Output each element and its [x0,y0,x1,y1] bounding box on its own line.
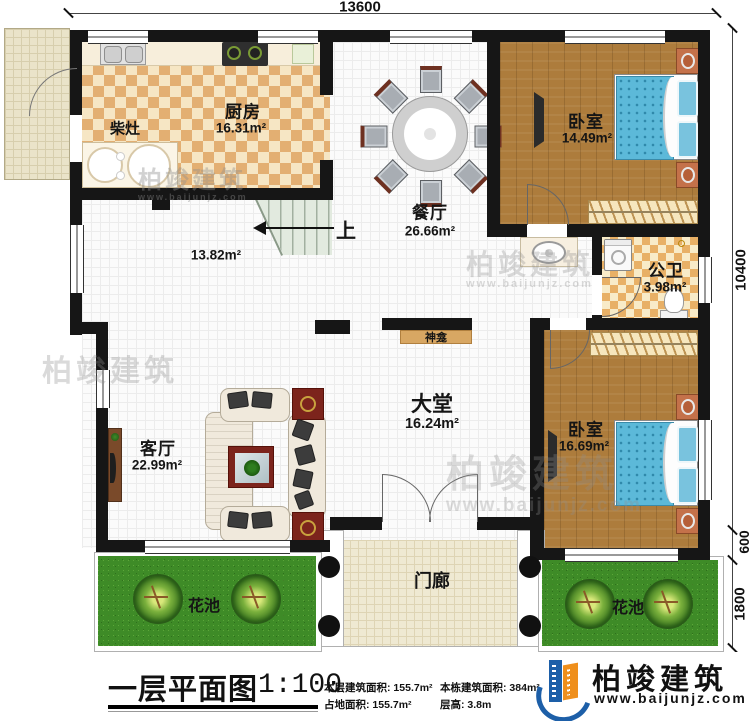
tv-icon [534,92,544,148]
wall [320,160,333,200]
dining-table-center [424,128,436,140]
dining-label: 餐厅 [412,199,448,224]
wall [487,30,500,237]
porch-column [318,615,340,637]
window [565,30,665,44]
watermark: 柏竣建筑 www.baijunjz.com [446,456,642,516]
living-area: 22.99m² [132,458,182,473]
nightstand [676,508,700,534]
hall-label: 大堂 [411,388,453,418]
floor-plan-canvas: 厨房 16.31m² 柴灶 餐厅 26.66m² 13.82m² 上 卧室 14… [0,0,750,721]
brand-logo-tower-icon [549,660,562,702]
dimension-right-wall: 600 [736,530,750,553]
stairs-up-label: 上 [336,215,356,244]
watermark-url: www.baijunjz.com [446,496,642,516]
kitchen-area: 16.31m² [216,121,266,136]
stair-direction-line [266,227,334,229]
nightstand-knob [681,53,695,69]
porch-column [519,615,541,637]
washing-machine-icon [604,239,632,271]
shrine-label: 神龛 [425,329,447,345]
sink-basin [125,46,143,63]
dining-chair [361,126,388,148]
building-windows [567,669,570,696]
sofa-pillow [227,511,249,529]
tower-windows [552,665,556,697]
double-sink-icon [100,43,146,65]
brand-url: www.baijunjz.com [594,690,747,706]
bathroom-area: 3.98m² [644,280,687,295]
stat-footprint-area: 占地面积: 155.7m² [324,697,412,712]
dimension-line-top [68,13,716,14]
pillow [677,121,698,158]
wall [530,318,544,560]
cutting-board [292,44,314,64]
bedroom-bottom-label: 卧室 [568,416,604,441]
title-underline-thin [108,711,318,712]
pillow [677,80,698,117]
bedroom-top-area: 14.49m² [562,131,612,146]
stat-label: 本层建筑面积: [324,682,391,694]
wardrobe [588,200,698,224]
watermark: 柏竣建筑 www.baijunjz.com [466,250,594,291]
nightstand [676,48,700,74]
window [258,30,318,44]
burner [248,46,262,60]
door-opening [527,224,567,237]
stat-building-area: 本栋建筑面积: 384m² [440,680,540,695]
dimension-right-flowerbed: 1800 [732,587,749,620]
gold-medallion [300,396,316,412]
table-plant-icon [244,460,260,476]
stove-small-hole [116,152,125,161]
stat-value: 155.7m² [372,699,411,711]
sofa-pillow [292,468,313,489]
burner [227,46,241,60]
wall [320,30,333,95]
flower-bed-left-label: 花池 [188,592,220,616]
coffee-table [228,446,274,488]
window [145,540,290,554]
tv-cabinet [108,428,122,502]
shrub-icon [231,574,281,624]
stair-hall-area: 13.82m² [191,248,241,263]
wardrobe [590,332,698,356]
window [698,420,712,500]
nightstand-knob [681,399,695,415]
wood-stove-label: 柴灶 [110,118,140,139]
watermark: 柏竣建筑 www.baijunjz.com [138,168,248,203]
stat-label: 本栋建筑面积: [440,682,507,694]
sofa-pillow [227,391,249,410]
window [565,548,678,562]
shrub-icon [643,579,693,629]
pillow [677,426,698,463]
brand-logo-building-icon [563,663,578,701]
window [88,30,148,44]
wall [315,320,350,334]
nightstand-knob [681,167,695,183]
window [390,30,472,44]
flower-bed-right-label: 花池 [612,594,644,618]
stat-storey-height: 层高: 3.8m [440,697,491,712]
stat-value: 155.7m² [393,682,432,694]
stat-value: 3.8m [467,699,491,711]
gold-medallion [300,520,316,536]
wall [477,517,534,530]
side-table [292,388,324,420]
sofa-pillow [251,391,273,409]
watermark-brand: 柏竣建筑 [138,168,248,193]
hall-area: 16.24m² [405,416,459,432]
window [70,225,84,293]
washer-panel [605,240,631,246]
stat-floor-area: 本层建筑面积: 155.7m² [324,680,433,695]
stair-arrow-icon [253,221,266,235]
window [698,257,712,303]
dimension-right-total: 10400 [733,249,750,291]
watermark-brand: 柏竣建筑 [446,456,642,496]
sink-basin [104,46,122,63]
nightstand [676,394,700,420]
watermark-url: www.baijunjz.com [466,279,594,291]
wall [330,517,382,530]
stat-label: 层高: [440,699,465,711]
dining-chair [420,66,442,93]
stove-small-hole [116,171,125,180]
porch-floor [342,540,517,646]
title-underline [108,705,318,709]
porch-column [318,556,340,578]
watermark: 柏竣建筑 [42,356,178,388]
dimension-top-value: 13600 [339,0,381,16]
nightstand-knob [681,513,695,529]
dining-table [392,96,468,172]
door-opening [70,115,82,162]
washer-door [611,250,626,265]
porch-column [519,556,541,578]
stat-label: 占地面积: [324,699,370,711]
shrub-icon [133,574,183,624]
plan-title: 一层平面图 [108,666,258,708]
gas-stove-icon [222,42,268,66]
tv-icon [110,453,116,483]
bathroom-label: 公卫 [648,257,684,282]
bedroom-top-label: 卧室 [568,108,604,133]
nightstand [676,162,700,188]
door-opening [550,318,586,330]
watermark-url: www.baijunjz.com [138,193,248,202]
kitchen-label: 厨房 [225,98,261,123]
bedroom-bottom-area: 16.69m² [559,439,609,454]
shrub-icon [565,579,615,629]
porch-label: 门廊 [414,567,450,593]
living-label: 客厅 [140,435,176,460]
cabinet-plant-icon [111,433,119,441]
bed [614,74,698,160]
sofa-pillow [251,511,273,529]
ceiling-pull-icon [678,240,685,247]
dimension-line-right [732,28,733,648]
pillow [677,467,698,504]
watermark-brand: 柏竣建筑 [466,250,594,279]
dining-area: 26.66m² [405,224,455,239]
